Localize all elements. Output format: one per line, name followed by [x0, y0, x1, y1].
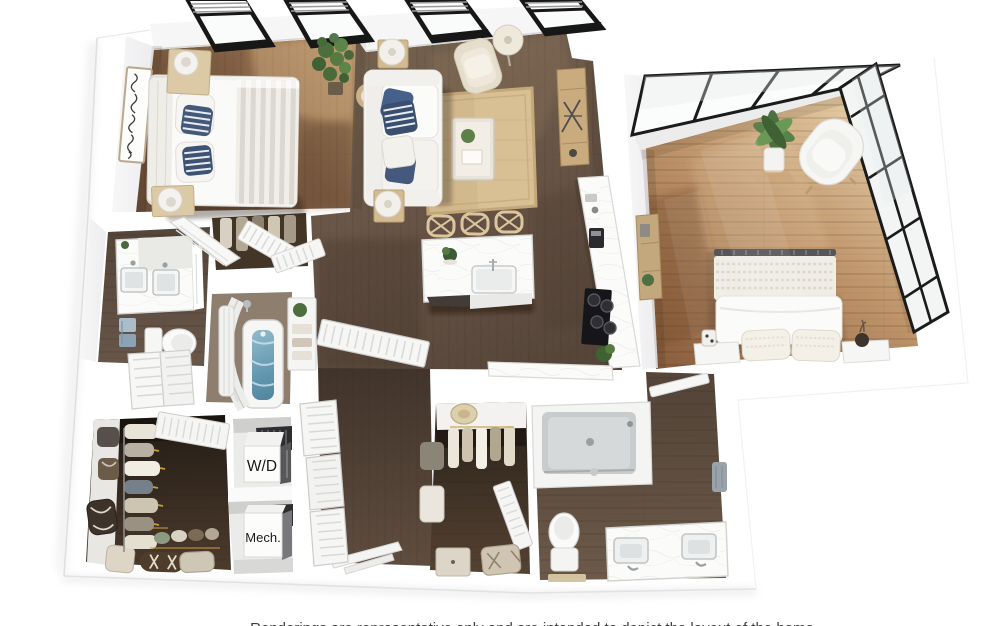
svg-text:Renderings are representative: Renderings are representative only and a… — [250, 620, 814, 626]
svg-text:W/D: W/D — [247, 458, 277, 475]
svg-text:Mech.: Mech. — [245, 530, 280, 545]
